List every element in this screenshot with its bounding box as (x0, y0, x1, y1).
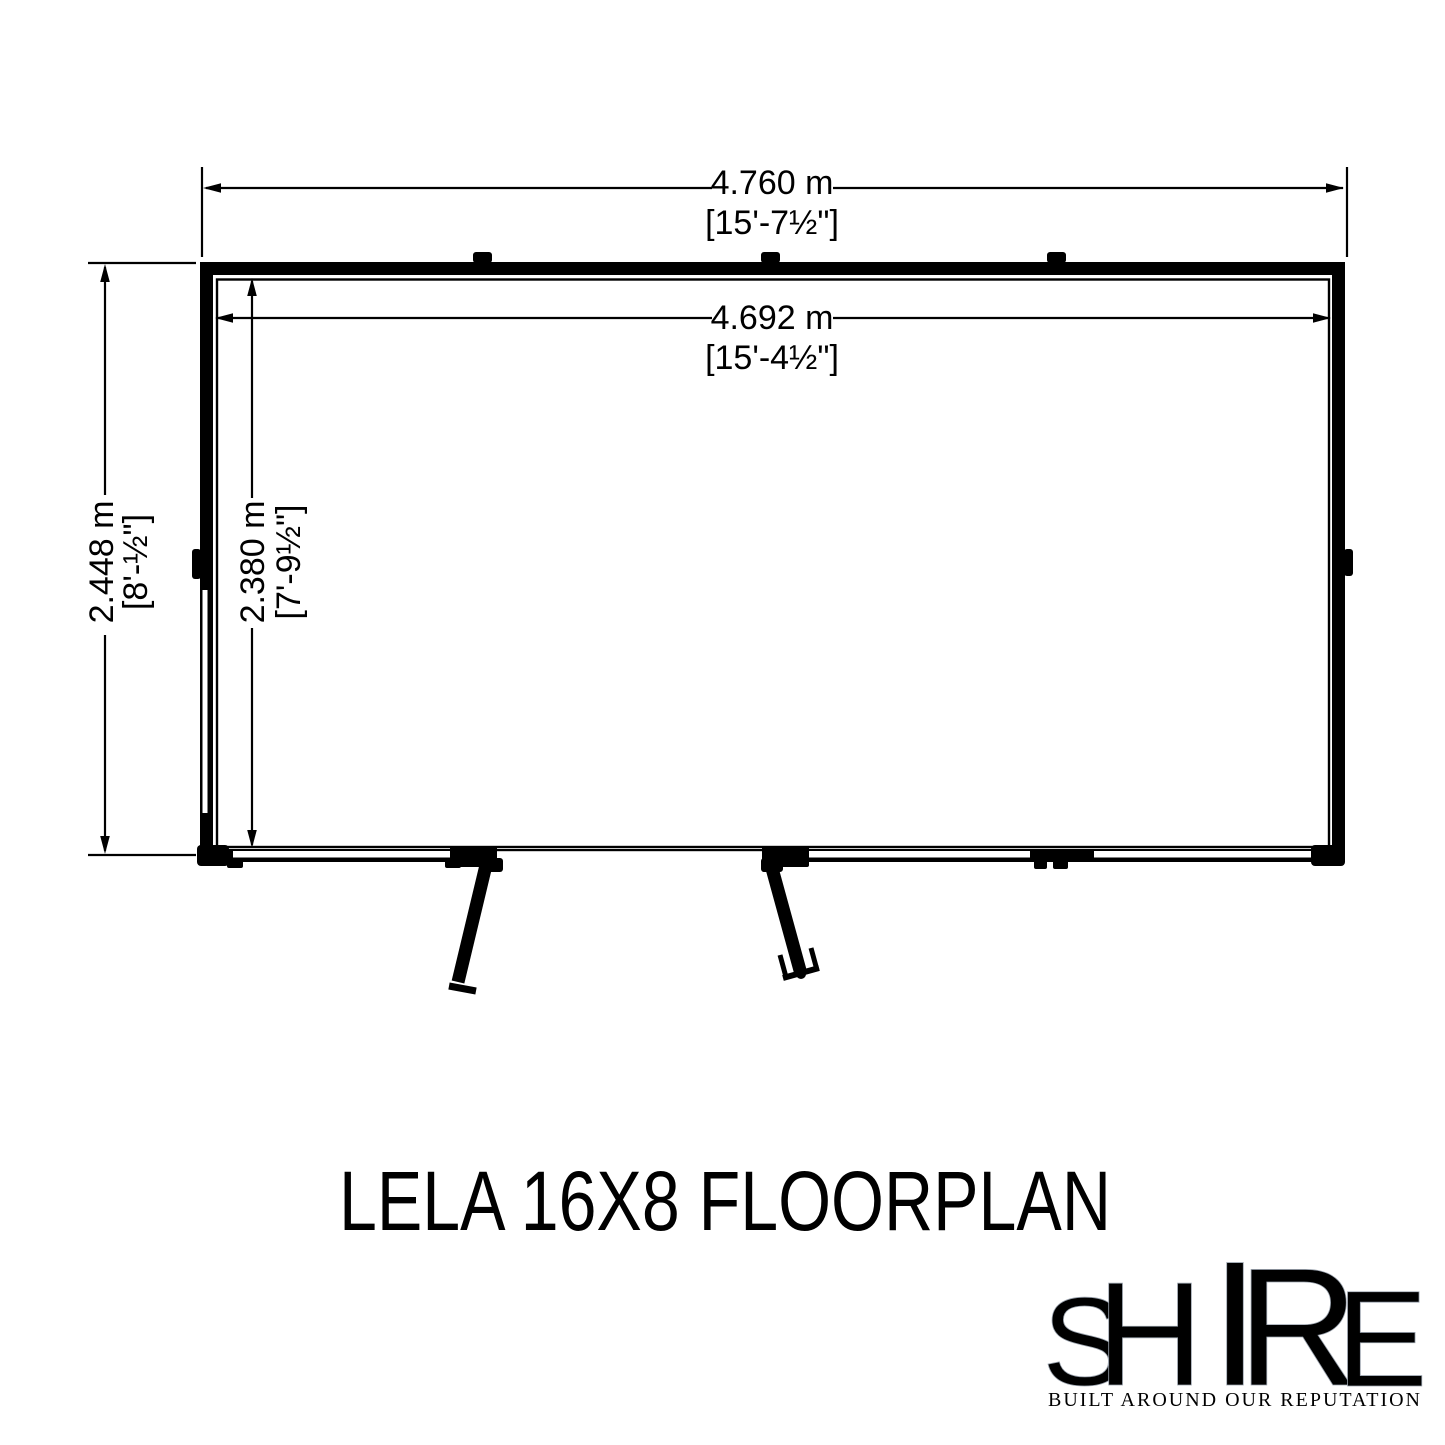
logo-tagline: BUILT AROUND OUR REPUTATION (1048, 1389, 1422, 1411)
corner-foot-right (1311, 845, 1345, 866)
arrowhead (1326, 183, 1344, 193)
window-front-left (233, 851, 450, 858)
inner-depth-metric-label: 2.380 m (234, 501, 272, 624)
double-doors (449, 861, 819, 991)
window-post (1053, 859, 1068, 869)
door-opening (497, 851, 763, 865)
outer-width-imperial-label: [15'-7½"] (705, 204, 839, 242)
roof-clip (761, 252, 780, 263)
arrowhead (203, 183, 221, 193)
floorplan-page: 4.760 m [15'-7½"] 4.692 m [15'-4½"] 2.44… (0, 0, 1445, 1445)
arrowhead (100, 264, 110, 282)
outer-depth-metric-label: 2.448 m (83, 501, 121, 624)
corner-foot-left (197, 845, 229, 866)
floorplan-drawing: 4.760 m [15'-7½"] 4.692 m [15'-4½"] 2.44… (0, 0, 1445, 1445)
outer-depth-imperial-label: [8'-½"] (117, 514, 155, 610)
side-clip-right (1344, 549, 1353, 576)
window-front-right (1094, 851, 1313, 858)
door-left-leaf (458, 861, 487, 982)
window-front-middle (807, 851, 1030, 858)
window-side-left (203, 590, 208, 813)
side-clip-left (192, 549, 201, 579)
door-left-foot (449, 986, 476, 991)
windows (203, 590, 1314, 858)
door-right-leaf (770, 861, 801, 974)
arrowhead (247, 830, 257, 848)
inner-depth-imperial-label: [7'-9½"] (270, 505, 308, 620)
roof-clip (473, 252, 492, 263)
page-title: LELA 16X8 FLOORPLAN (339, 1154, 1111, 1248)
window-post (1034, 859, 1047, 869)
inner-width-imperial-label: [15'-4½"] (705, 339, 839, 377)
window-post (227, 859, 243, 868)
inner-width-metric-label: 4.692 m (711, 299, 834, 337)
roof-clip (1047, 252, 1066, 263)
arrowhead (100, 836, 110, 854)
outer-width-metric-label: 4.760 m (711, 164, 834, 202)
